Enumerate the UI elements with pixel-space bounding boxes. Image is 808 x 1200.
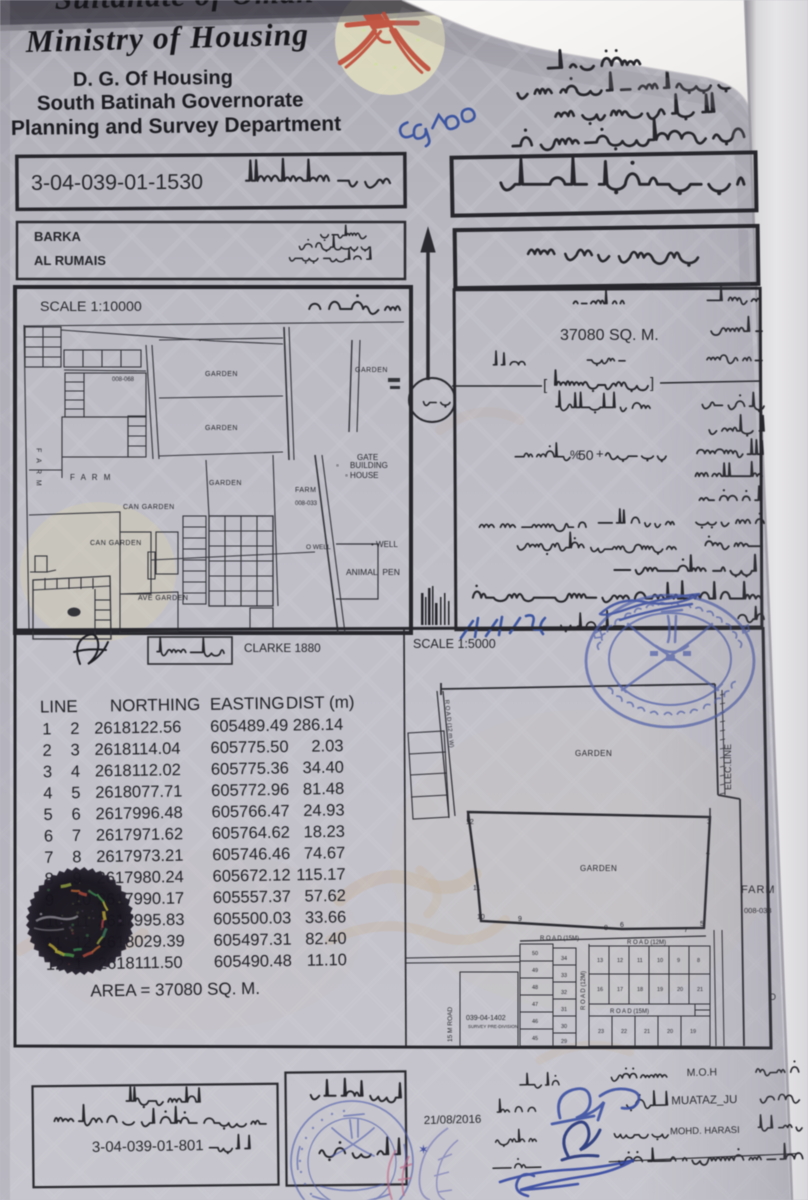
svg-text:49: 49	[532, 968, 538, 974]
svg-text:2: 2	[42, 742, 51, 760]
svg-text:GARDEN: GARDEN	[205, 371, 238, 378]
svg-text:31: 31	[561, 1007, 567, 1013]
svg-text:GARDEN: GARDEN	[575, 749, 612, 758]
svg-text:5: 5	[71, 784, 80, 802]
svg-text:▫: ▫	[336, 461, 339, 470]
svg-text:R O A D (15M): R O A D (15M)	[540, 936, 579, 942]
svg-text:LINE: LINE	[40, 697, 78, 717]
svg-text:12: 12	[466, 819, 474, 826]
svg-text:R O A D (12M): R O A D (12M)	[581, 971, 587, 1010]
svg-text:F A R M: F A R M	[70, 473, 112, 482]
svg-text:605672.12: 605672.12	[212, 866, 290, 885]
svg-text:GARDEN: GARDEN	[205, 425, 238, 432]
svg-text:30: 30	[561, 1024, 567, 1030]
svg-text:+: +	[596, 446, 604, 461]
svg-text:34.40: 34.40	[302, 759, 344, 778]
svg-text:DIST (m): DIST (m)	[286, 693, 355, 713]
svg-text:GARDEN: GARDEN	[209, 480, 242, 487]
svg-text:24.93: 24.93	[303, 801, 345, 820]
svg-text:34: 34	[561, 956, 567, 962]
svg-text:3-04-039-01-1530: 3-04-039-01-1530	[31, 170, 203, 195]
svg-text:74.67: 74.67	[304, 844, 346, 863]
svg-text:GARDEN: GARDEN	[580, 864, 617, 873]
svg-text:7: 7	[44, 849, 53, 867]
svg-text:21/08/2016: 21/08/2016	[424, 1114, 482, 1127]
svg-text:33.66: 33.66	[305, 908, 347, 927]
svg-text:6: 6	[71, 805, 80, 823]
svg-text:CAN GARDEN: CAN GARDEN	[90, 540, 142, 547]
svg-text:8: 8	[72, 848, 81, 866]
svg-text:2: 2	[70, 720, 79, 738]
svg-text:16: 16	[597, 987, 603, 993]
svg-text:▫ HOUSE: ▫ HOUSE	[345, 471, 379, 480]
svg-text:605500.03: 605500.03	[213, 909, 291, 928]
svg-text:45: 45	[532, 1036, 538, 1042]
svg-text:11.10: 11.10	[307, 951, 347, 970]
svg-text:605490.48: 605490.48	[214, 952, 292, 971]
svg-text:15 M ROAD: 15 M ROAD	[447, 1007, 454, 1042]
svg-text:11: 11	[473, 885, 480, 892]
svg-text:47: 47	[532, 1002, 538, 1008]
svg-text:2618112.02: 2618112.02	[95, 761, 181, 780]
svg-text:D. G. Of Housing: D. G. Of Housing	[73, 67, 233, 91]
svg-text:NORTHING: NORTHING	[110, 695, 201, 715]
svg-text:SCALE 1:5000: SCALE 1:5000	[413, 637, 496, 651]
svg-text:FARM: FARM	[295, 487, 316, 494]
svg-text:17: 17	[617, 987, 623, 993]
svg-text:6: 6	[44, 827, 53, 845]
svg-text:3: 3	[70, 741, 79, 759]
svg-text:10: 10	[477, 914, 485, 921]
svg-text:5: 5	[43, 806, 52, 824]
svg-text:2618114.04: 2618114.04	[94, 740, 180, 759]
svg-text:008-033: 008-033	[295, 501, 318, 507]
svg-text:32: 32	[561, 990, 567, 996]
svg-text:605775.50: 605775.50	[210, 738, 288, 757]
svg-text:Planning and Survey Department: Planning and Survey Department	[11, 112, 342, 140]
svg-text:12: 12	[617, 958, 623, 964]
svg-text:2617971.62: 2617971.62	[96, 825, 183, 844]
svg-text:605489.49: 605489.49	[210, 717, 288, 736]
svg-text:22: 22	[621, 1029, 627, 1035]
svg-text:4: 4	[43, 785, 52, 803]
svg-text:BUILDING: BUILDING	[350, 461, 388, 470]
svg-text:South Batinah Governorate: South Batinah Governorate	[37, 88, 304, 115]
svg-text:CAN GARDEN: CAN GARDEN	[123, 504, 175, 511]
svg-text:7: 7	[72, 827, 81, 845]
svg-text:AL RUMAIS: AL RUMAIS	[34, 253, 106, 268]
svg-text:2618077.71: 2618077.71	[95, 782, 182, 801]
svg-text:605775.36: 605775.36	[211, 759, 289, 778]
svg-text:SCALE 1:10000: SCALE 1:10000	[40, 299, 142, 315]
svg-text:CLARKE 1880: CLARKE 1880	[244, 641, 321, 655]
svg-text:2618122.56: 2618122.56	[94, 718, 181, 737]
svg-text:50: 50	[532, 951, 538, 957]
svg-text:2617973.21: 2617973.21	[96, 847, 183, 866]
svg-text:605497.31: 605497.31	[213, 931, 291, 950]
svg-text:115.17: 115.17	[296, 866, 346, 885]
svg-text:3: 3	[43, 763, 52, 781]
svg-text:605557.37: 605557.37	[213, 888, 291, 907]
svg-text:AVE GARDEN: AVE GARDEN	[138, 595, 188, 602]
svg-text:13: 13	[597, 958, 603, 964]
svg-text:46: 46	[532, 1019, 538, 1025]
svg-text:6: 6	[620, 922, 624, 929]
svg-text:%: %	[570, 448, 581, 462]
svg-text:29: 29	[561, 1039, 567, 1045]
svg-text:Ministry of Housing: Ministry of Housing	[24, 17, 309, 59]
svg-text:48: 48	[532, 985, 538, 991]
svg-text:23: 23	[598, 1029, 604, 1035]
svg-text:039-04-1402: 039-04-1402	[466, 1015, 506, 1022]
svg-text:8: 8	[604, 925, 608, 932]
svg-text:605764.62: 605764.62	[212, 824, 290, 843]
svg-text:F A R M: F A R M	[35, 448, 42, 488]
svg-text:SURVEY PRE-DIVISION: SURVEY PRE-DIVISION	[468, 1024, 518, 1029]
svg-text:4: 4	[71, 763, 80, 781]
svg-text:2617996.48: 2617996.48	[95, 804, 182, 823]
svg-text:82.40: 82.40	[305, 930, 347, 949]
svg-text:ANIMAL PEN: ANIMAL PEN	[346, 567, 400, 577]
svg-text:18.23: 18.23	[303, 823, 345, 842]
svg-text:9: 9	[518, 916, 522, 923]
svg-text:• WELL: • WELL	[371, 540, 398, 549]
svg-text:O WELL: O WELL	[306, 544, 331, 551]
svg-text:81.48: 81.48	[303, 780, 345, 799]
svg-text:286.14: 286.14	[293, 716, 344, 735]
svg-text:008-068: 008-068	[112, 377, 135, 383]
svg-text:BARKA: BARKA	[34, 229, 82, 244]
svg-text:1: 1	[42, 720, 51, 738]
svg-text:605772.96: 605772.96	[211, 781, 289, 800]
svg-text:AREA = 37080 SQ. M.: AREA = 37080 SQ. M.	[90, 979, 260, 1001]
svg-text:EASTING: EASTING	[210, 694, 285, 714]
svg-text:605766.47: 605766.47	[211, 802, 289, 821]
svg-text:3-04-039-01-801: 3-04-039-01-801	[92, 1137, 204, 1156]
svg-text:605746.46: 605746.46	[212, 845, 290, 864]
svg-text:33: 33	[561, 973, 567, 979]
svg-text:2.03: 2.03	[311, 737, 343, 756]
svg-text:57.62: 57.62	[304, 887, 346, 906]
svg-text:GARDEN: GARDEN	[355, 367, 388, 374]
